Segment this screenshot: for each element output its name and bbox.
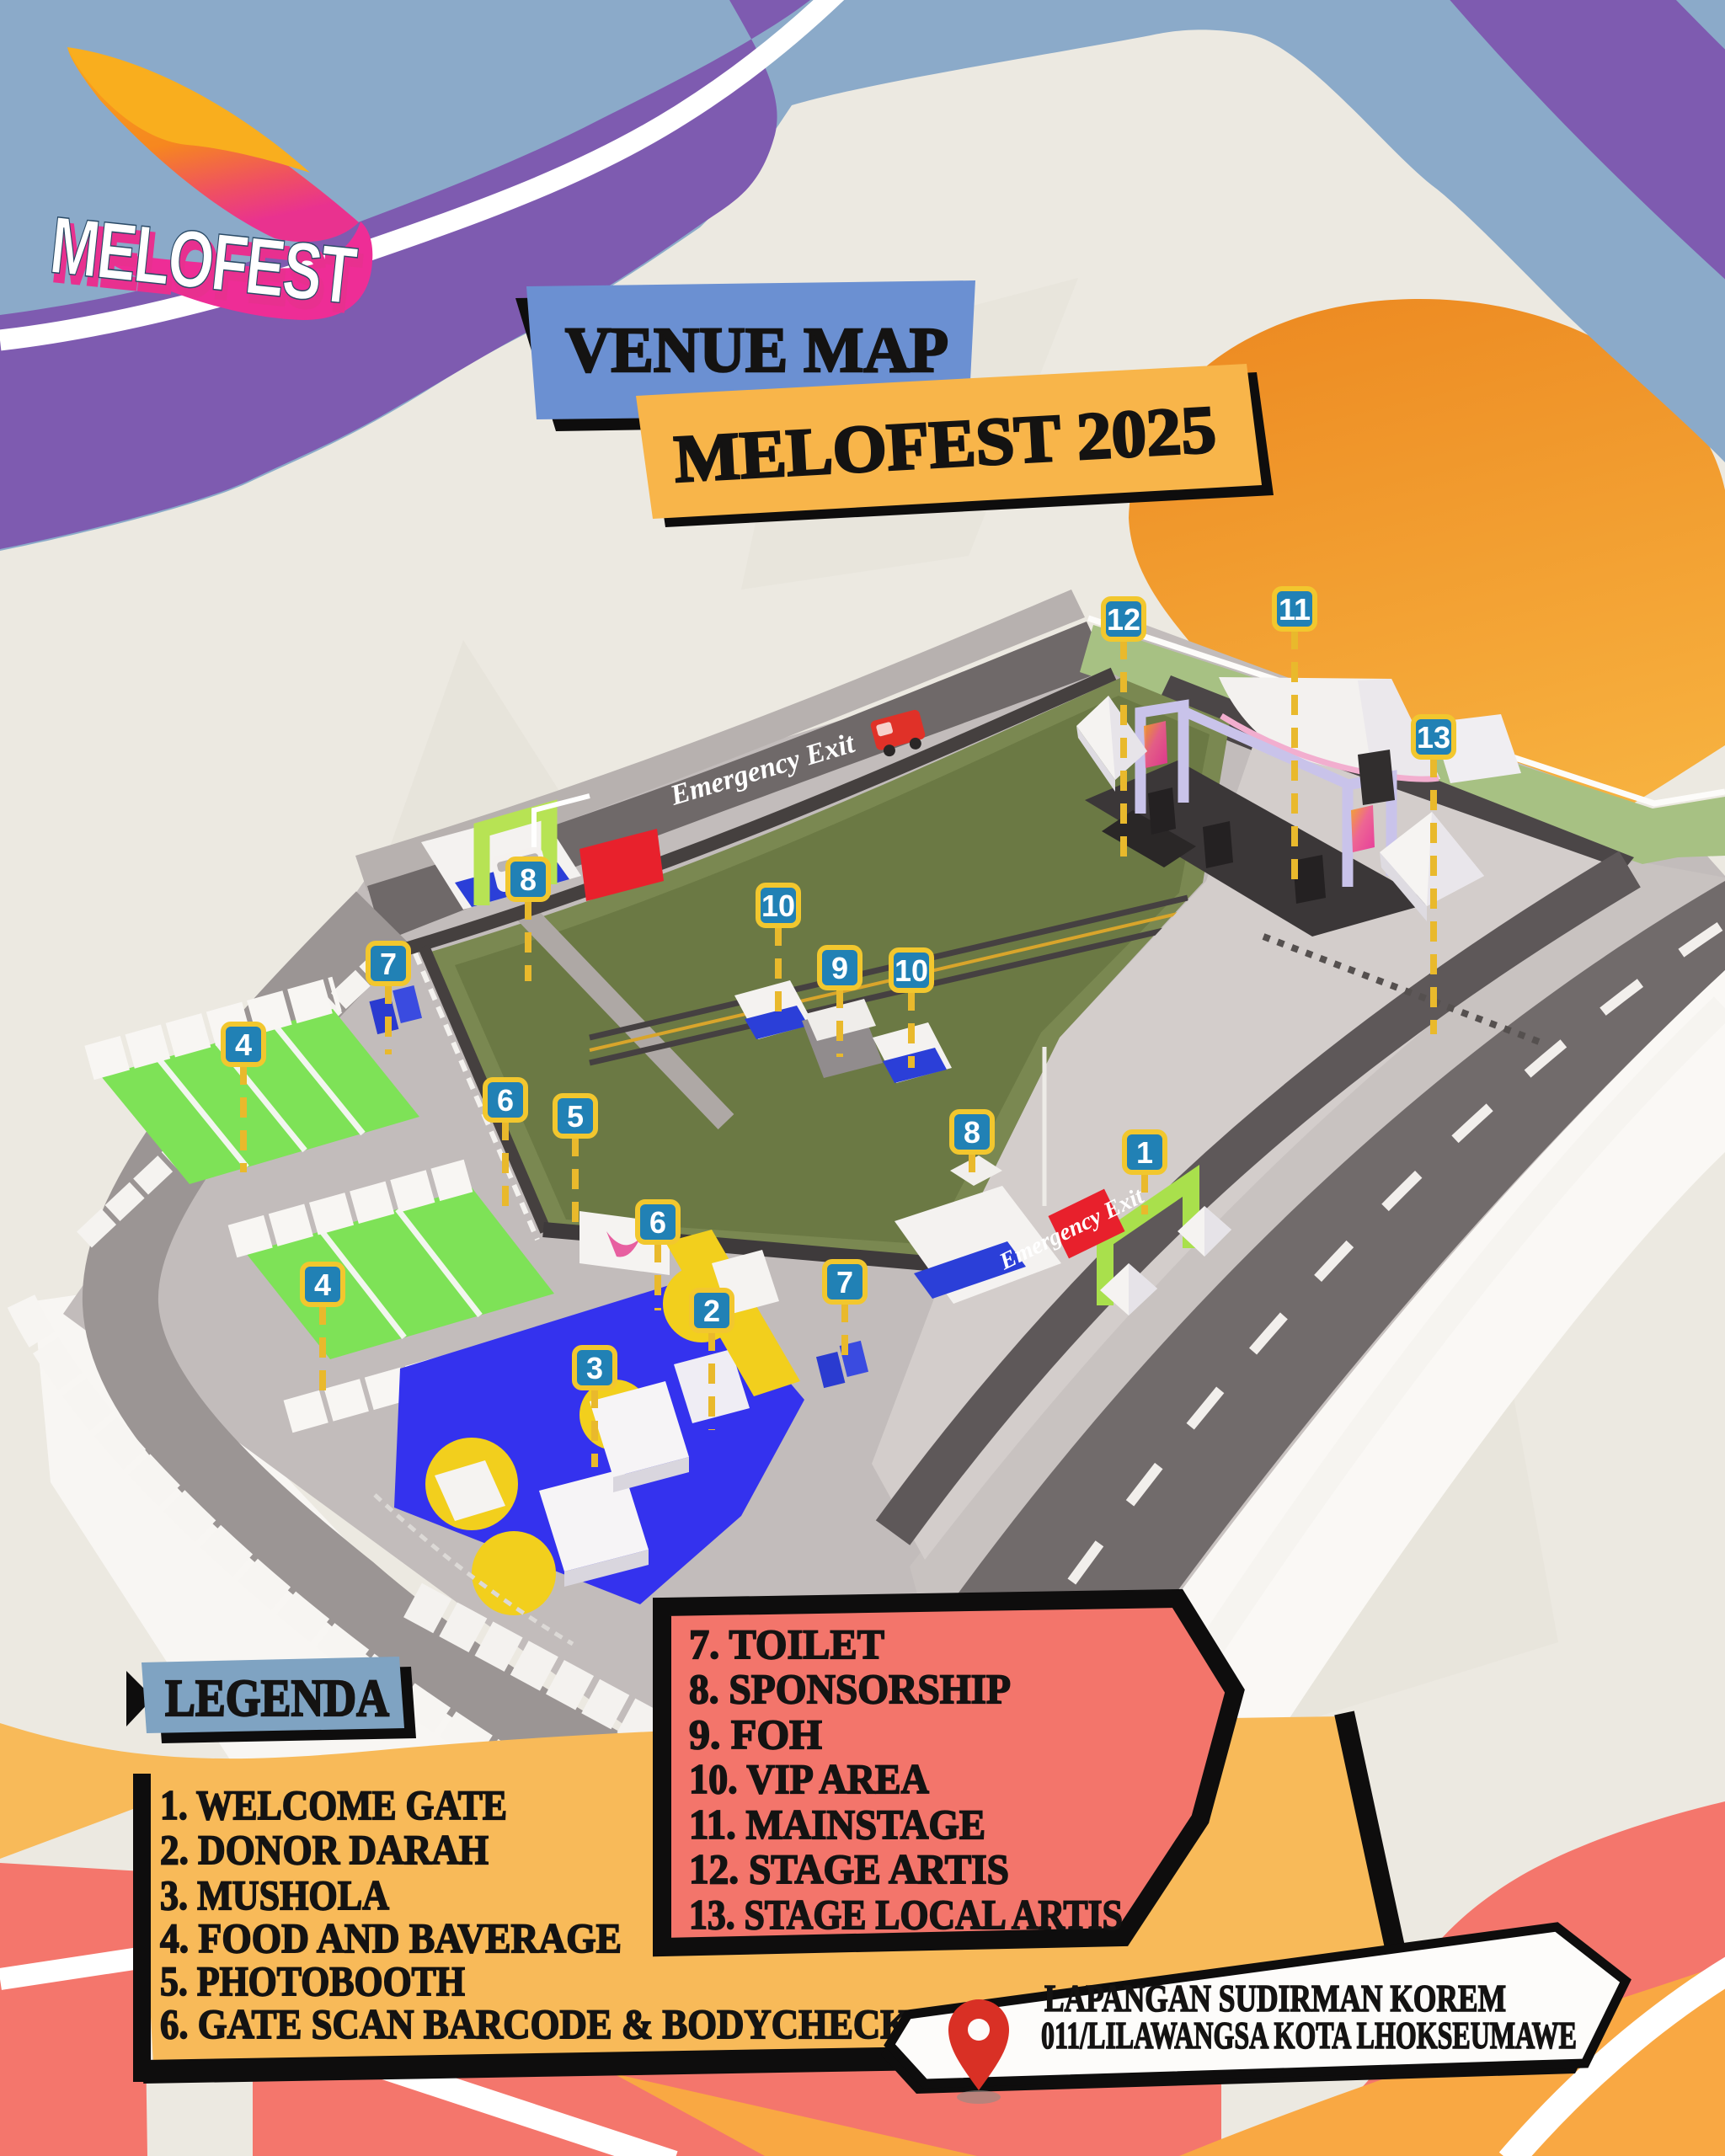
svg-text:6. GATE SCAN BARCODE & BODYCHE: 6. GATE SCAN BARCODE & BODYCHECK: [160, 2000, 910, 2047]
svg-text:13. STAGE LOCAL ARTIS: 13. STAGE LOCAL ARTIS: [689, 1891, 1123, 1938]
svg-text:4: 4: [235, 1027, 252, 1062]
svg-text:8. SPONSORSHIP: 8. SPONSORSHIP: [689, 1665, 1011, 1712]
svg-text:9: 9: [831, 951, 848, 985]
svg-text:8: 8: [520, 862, 537, 897]
svg-text:2: 2: [703, 1294, 720, 1328]
svg-text:1. WELCOME GATE: 1. WELCOME GATE: [160, 1781, 507, 1828]
svg-text:10. VIP AREA: 10. VIP AREA: [689, 1755, 929, 1802]
svg-text:5: 5: [567, 1099, 584, 1134]
svg-text:10: 10: [895, 953, 928, 988]
svg-text:7: 7: [836, 1265, 853, 1299]
svg-text:2. DONOR DARAH: 2. DONOR DARAH: [160, 1826, 489, 1873]
svg-text:3: 3: [586, 1351, 603, 1385]
svg-text:12. STAGE ARTIS: 12. STAGE ARTIS: [689, 1845, 1009, 1892]
svg-text:8: 8: [964, 1115, 980, 1150]
svg-text:13: 13: [1417, 720, 1450, 755]
svg-text:9. FOH: 9. FOH: [689, 1710, 822, 1758]
svg-text:VENUE MAP: VENUE MAP: [565, 315, 948, 386]
svg-text:5. PHOTOBOOTH: 5. PHOTOBOOTH: [160, 1957, 465, 2004]
svg-text:10: 10: [761, 889, 795, 923]
svg-text:1: 1: [1136, 1135, 1153, 1170]
svg-text:011/LILAWANGSA KOTA LHOKSEUMAW: 011/LILAWANGSA KOTA LHOKSEUMAWE: [1041, 2014, 1577, 2057]
svg-text:11: 11: [1279, 592, 1311, 627]
svg-text:3. MUSHOLA: 3. MUSHOLA: [160, 1871, 389, 1919]
svg-text:4: 4: [314, 1267, 331, 1302]
svg-text:7: 7: [380, 947, 397, 981]
svg-text:6: 6: [649, 1205, 666, 1240]
svg-text:11. MAINSTAGE: 11. MAINSTAGE: [689, 1801, 985, 1848]
svg-text:4. FOOD AND BAVERAGE: 4. FOOD AND BAVERAGE: [160, 1914, 622, 1961]
svg-text:12: 12: [1107, 602, 1140, 637]
svg-text:LEGENDA: LEGENDA: [165, 1670, 389, 1727]
svg-text:6: 6: [497, 1083, 514, 1118]
svg-text:7. TOILET: 7. TOILET: [689, 1620, 884, 1668]
